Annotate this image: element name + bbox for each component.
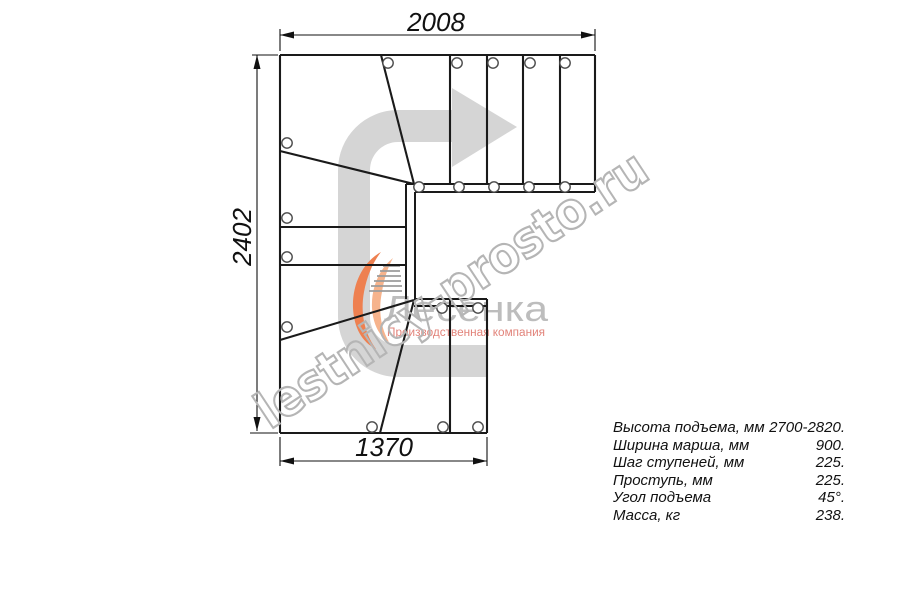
spec-value: 225. — [816, 472, 845, 490]
spec-row-height: Высота подъема, мм 2700-2820. — [613, 419, 845, 437]
staircase-drawing-page: { "dimensions": { "top_width_mm": "2008"… — [0, 0, 900, 600]
spec-label: Угол подъема — [613, 489, 711, 507]
spec-row-mass: Масса, кг 238. — [613, 507, 845, 525]
spec-row-tread: Проступь, мм 225. — [613, 472, 845, 490]
spec-row-step-pitch: Шаг ступеней, мм 225. — [613, 454, 845, 472]
spec-value: 2700-2820. — [769, 419, 845, 437]
dimension-top-label: 2008 — [406, 7, 465, 37]
dimension-left-label: 2402 — [227, 208, 257, 267]
spec-value: 238. — [816, 507, 845, 525]
spec-label: Высота подъема, мм — [613, 419, 765, 437]
spec-table: Высота подъема, мм 2700-2820. Ширина мар… — [613, 419, 845, 525]
spec-value: 45°. — [818, 489, 845, 507]
spec-row-flight-width: Ширина марша, мм 900. — [613, 437, 845, 455]
spec-row-angle: Угол подъема 45°. — [613, 489, 845, 507]
spec-label: Проступь, мм — [613, 472, 713, 490]
spec-value: 225. — [816, 454, 845, 472]
spec-label: Масса, кг — [613, 507, 680, 525]
spec-label: Шаг ступеней, мм — [613, 454, 744, 472]
dimension-bottom-label: 1370 — [355, 432, 413, 462]
spec-label: Ширина марша, мм — [613, 437, 749, 455]
spec-value: 900. — [816, 437, 845, 455]
